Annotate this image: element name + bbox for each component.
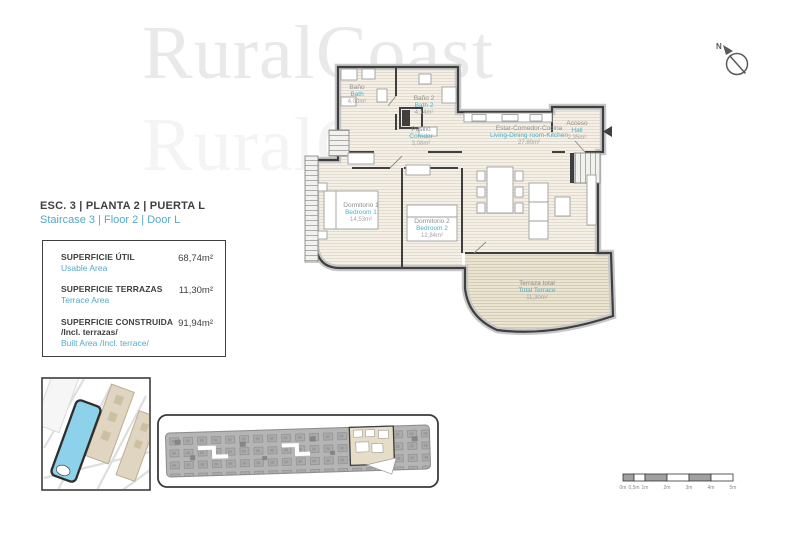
area-value: 68,74m² [178,252,213,264]
area-value: 91,94m² [178,317,213,329]
key-plan-strip [158,415,438,487]
room-label-bath: Baño Bath 4,00m² [348,84,367,106]
area-summary-box: SUPERFICIE ÚTIL Usable Area 68,74m² SUPE… [42,240,226,357]
area-label-es: SUPERFICIE TERRAZAS [61,284,163,295]
apartment-plan [305,67,613,332]
room-label-bedroom2: Dormitorio 2 Bedroom 2 12,84m² [414,218,449,240]
room-label-living: Estar-Comedor-Cocina Living-Dining room-… [490,125,568,147]
wardrobe-2 [406,165,430,175]
scale-bar [623,474,733,481]
area-row-usable: SUPERFICIE ÚTIL Usable Area 68,74m² [61,252,213,273]
room-label-hall: Acceso Hall 2,35m² [566,120,587,142]
floorplan-sheet: RuralCoast RuralCoast [0,0,790,554]
dining-table [487,167,513,213]
north-label: N [716,42,722,51]
tv-unit [587,175,596,225]
page-subtitle: Staircase 3 | Floor 2 | Door L [40,214,180,226]
room-label-terrace: Terraza total Total Terrace 11,30m² [518,280,555,302]
room-label-bath2: Baño 2 Bath 2 4,14m² [414,95,435,117]
area-label-es: SUPERFICIE CONSTRUIDA [61,317,173,328]
area-label-es: SUPERFICIE ÚTIL [61,252,135,263]
area-label-en: Built Area /Incl. terrace/ [61,338,173,349]
west-gallery-stairs [305,156,318,262]
area-value: 11,30m² [179,284,213,296]
wardrobe-1 [348,153,374,164]
area-row-built: SUPERFICIE CONSTRUIDA /Incl. terrazas/ B… [61,317,213,349]
area-label-en: Terrace Area [61,295,163,306]
coffee-table [555,197,570,216]
area-row-terrace: SUPERFICIE TERRAZAS Terrace Area 11,30m² [61,284,213,305]
room-label-corridor: Pasillo Corridor 3,08m² [409,126,432,148]
site-map [35,367,159,492]
north-compass-icon: N [716,42,748,75]
page-title: ESC. 3 | PLANTA 2 | PUERTA L [40,200,205,212]
area-sublabel-es: /Incl. terrazas/ [61,327,173,338]
sofa [529,183,548,239]
stair-left [329,130,349,156]
room-label-bedroom1: Dormitorio 1 Bedroom 1 14,53m² [343,202,378,224]
area-label-en: Usable Area [61,263,135,274]
